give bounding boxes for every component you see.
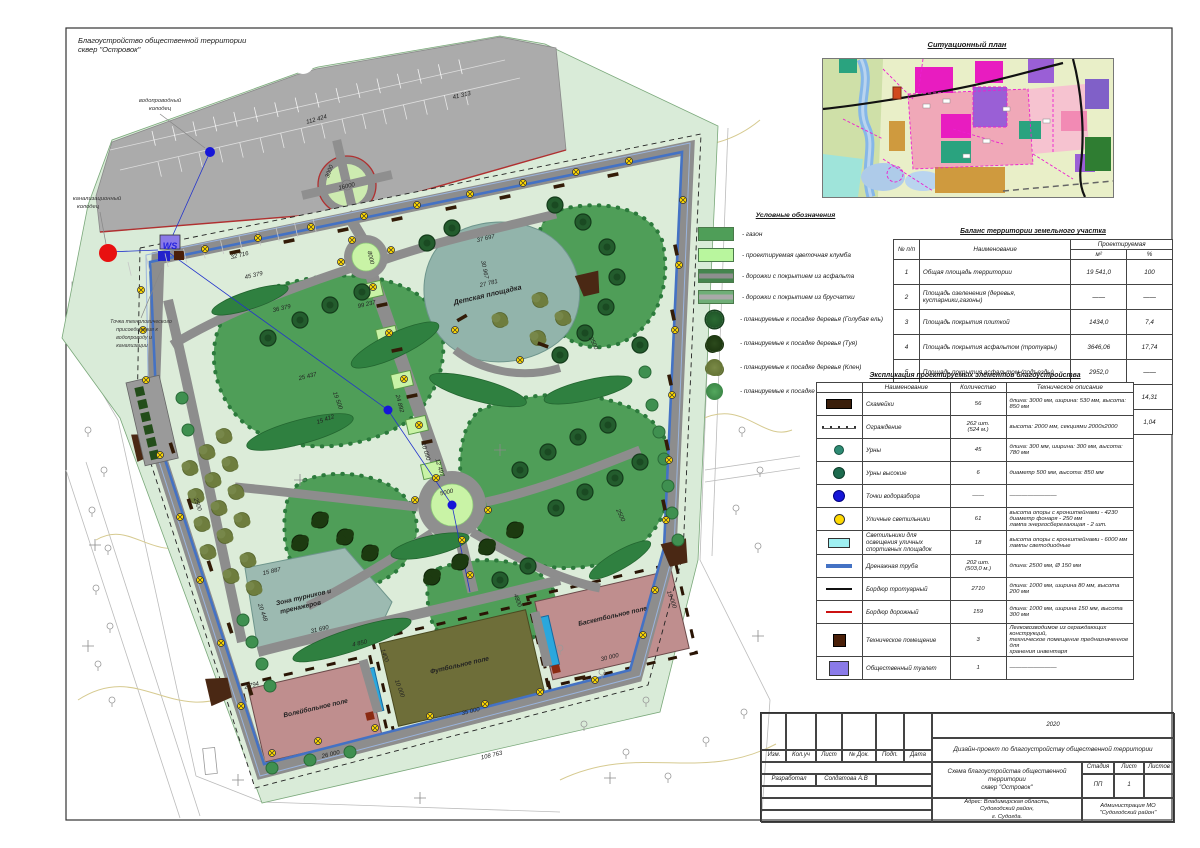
maple-tree-icon	[230, 462, 239, 471]
maple-tree-icon	[216, 430, 225, 439]
balance-row: 3 Площадь покрытия плиткой 1434,0 7,4	[894, 310, 1173, 335]
survey-tree-icon	[109, 697, 115, 703]
thuja-tree-icon	[361, 551, 371, 561]
legend-swatch-icon	[706, 335, 723, 352]
maple-tree-icon	[662, 480, 674, 492]
legend-swatch-icon	[698, 248, 734, 262]
row-m2: 19 541,0	[1071, 260, 1127, 285]
survey-tree-icon	[623, 749, 629, 755]
explication-table-block: Экспликация проектируемых элементов благ…	[816, 372, 1134, 680]
maple-tree-icon	[200, 546, 209, 555]
spruce-tree-icon	[297, 317, 304, 324]
element-desc: высота опоры с кронштейнами - 6000 мм ла…	[1006, 531, 1133, 555]
element-qty: 262 шт. (524 м.)	[950, 416, 1006, 439]
client: Администрация МО "Судогодский район"	[1081, 797, 1175, 823]
spruce-tree-icon	[327, 302, 334, 309]
element-desc: высота опоры с кронштейнами - 4230 диаме…	[1006, 508, 1133, 531]
plan-label: водопроводу и	[116, 335, 152, 341]
maple-tree-icon	[208, 550, 217, 559]
spruce-tree-icon	[605, 422, 612, 429]
spruce-tree-icon	[603, 304, 610, 311]
address: Адрес: Владимирская область, Судогодский…	[931, 797, 1083, 823]
survey-cross-icon	[89, 539, 101, 551]
spruce-tree-icon	[545, 449, 552, 456]
element-qty: 3	[950, 624, 1006, 657]
col-name: Наименование	[862, 383, 950, 393]
maple-tree-icon	[205, 474, 214, 483]
legend-item-label: - дорожки с покрытием из асфальта	[742, 273, 854, 280]
thuja-tree-icon	[431, 569, 441, 579]
survey-tree-icon	[107, 623, 113, 629]
thuja-tree-icon	[514, 522, 524, 532]
maple-tree-icon	[653, 426, 665, 438]
spruce-tree-icon	[265, 335, 272, 342]
element-desc: Легковозводимое из ограждающих конструкц…	[1006, 624, 1133, 657]
survey-cross-icon	[82, 640, 94, 652]
row-pct: 17,74	[1127, 335, 1173, 360]
maple-tree-icon	[182, 462, 191, 471]
col-pct: %	[1127, 250, 1173, 260]
title-block: Изм. Кол.уч Лист № Док. Подп. Дата Разра…	[760, 712, 1174, 822]
element-symbol-icon	[833, 634, 846, 647]
maple-tree-icon	[182, 424, 194, 436]
maple-tree-icon	[240, 554, 249, 563]
water-well	[205, 147, 215, 157]
element-qty: ——	[950, 485, 1006, 508]
element-name: Дренажная труба	[862, 555, 950, 578]
tech-room	[174, 251, 184, 260]
maple-tree-icon	[242, 518, 251, 527]
element-qty: 18	[950, 531, 1006, 555]
explication-table: Наименование Количество Техническое опис…	[816, 382, 1134, 680]
col-m2: м²	[1071, 250, 1127, 260]
explication-row: Бордюр тротуарный 2710 длина: 1000 мм, ш…	[817, 578, 1134, 601]
maple-tree-icon	[492, 314, 501, 323]
maple-tree-icon	[217, 530, 226, 539]
survey-tree-icon	[85, 427, 91, 433]
row-m2: 1434,0	[1071, 310, 1127, 335]
legend-item: - проектируемая цветочная клумба	[698, 248, 893, 262]
survey-tree-icon	[755, 543, 761, 549]
parking-notch	[292, 52, 314, 74]
legend-swatch-icon	[706, 383, 723, 400]
balance-table-title: Баланс территории земельного участка	[893, 228, 1173, 235]
thuja-tree-icon	[336, 535, 346, 545]
spruce-tree-icon	[553, 505, 560, 512]
thuja-tree-icon	[459, 554, 469, 564]
survey-tree-icon	[101, 467, 107, 473]
thuja-tree-icon	[299, 535, 309, 545]
col-name: Наименование	[919, 240, 1070, 260]
maple-tree-icon	[540, 298, 549, 307]
plan-label: колодец	[77, 204, 100, 210]
element-name: Урны высокие	[862, 462, 950, 485]
maple-tree-icon	[211, 502, 220, 511]
balance-row: 1 Общая площадь территории 19 541,0 100	[894, 260, 1173, 285]
element-name: Урны	[862, 439, 950, 462]
survey-cross-icon	[752, 630, 764, 642]
sheets-total	[1143, 773, 1175, 799]
thuja-tree-icon	[486, 539, 496, 549]
spruce-tree-icon	[604, 244, 611, 251]
thuja-tree-icon	[423, 575, 433, 585]
element-symbol-icon	[826, 588, 852, 590]
element-desc: высота: 2000 мм, секциями 2000х2000	[1006, 416, 1133, 439]
explication-row: Дренажная труба 202 шт. (503,0 м.) длина…	[817, 555, 1134, 578]
explication-table-title: Экспликация проектируемых элементов благ…	[816, 372, 1134, 379]
maple-tree-icon	[202, 522, 211, 531]
maple-tree-icon	[254, 586, 263, 595]
element-name: Бордюр тротуарный	[862, 578, 950, 601]
spruce-tree-icon	[449, 225, 456, 232]
drawing-sheet: { "sheet": { "title_line1": "Благоустрой…	[0, 0, 1200, 848]
plan-label: водопроводный	[139, 97, 182, 104]
water-point	[384, 406, 393, 415]
legend-item-label: - газон	[742, 231, 762, 238]
thuja-tree-icon	[369, 545, 379, 555]
maple-tree-icon	[639, 366, 651, 378]
col-desc: Техническое описание	[1006, 383, 1133, 393]
plan-label: WS	[163, 241, 178, 251]
survey-tree-icon	[703, 737, 709, 743]
row-name: Площадь покрытия плиткой	[919, 310, 1070, 335]
explication-row: Скамейки 56 длина: 3000 мм, ширина: 530 …	[817, 393, 1134, 416]
drawing-title: Схема благоустройства общественной терри…	[931, 761, 1083, 799]
spruce-tree-icon	[517, 467, 524, 474]
explication-row: Техническое помещение 3 Легковозводимое …	[817, 624, 1134, 657]
element-desc: длина: 3000 мм, ширина: 530 мм, высота: …	[1006, 393, 1133, 416]
spruce-tree-icon	[614, 274, 621, 281]
maple-tree-icon	[224, 434, 233, 443]
legend-swatch-icon	[698, 290, 734, 304]
survey-cross-icon	[232, 774, 244, 786]
thuja-tree-icon	[311, 518, 321, 528]
spruce-tree-icon	[424, 240, 431, 247]
element-name: Точки водоразбора	[862, 485, 950, 508]
plan-label: канализации	[116, 343, 148, 349]
legend-item-label: - планируемые к посадке деревья (Голубая…	[740, 316, 883, 323]
col-qty: Количество	[950, 383, 1006, 393]
maple-tree-icon	[231, 574, 240, 583]
survey-tree-icon	[105, 545, 111, 551]
element-symbol-icon	[834, 445, 844, 455]
thuja-tree-icon	[319, 512, 329, 522]
survey-tree-icon	[741, 709, 747, 715]
toilet-annex	[158, 251, 170, 261]
year: 2020	[931, 713, 1175, 739]
element-symbol-icon	[829, 661, 849, 676]
legend-item-label: - дорожки с покрытием из брусчатки	[742, 294, 855, 301]
explication-row: Светильники для освещения уличных спорти…	[817, 531, 1134, 555]
maple-tree-icon	[194, 518, 203, 527]
maple-tree-icon	[236, 490, 245, 499]
maple-tree-icon	[555, 312, 564, 321]
element-qty: 56	[950, 393, 1006, 416]
element-qty: 1	[950, 657, 1006, 680]
survey-cross-icon	[414, 792, 426, 804]
row-name: Площадь озеленения (деревья, кустарники,…	[919, 285, 1070, 310]
sewer-well	[99, 244, 117, 262]
stage-value: ПП	[1081, 773, 1115, 799]
maple-tree-icon	[222, 458, 231, 467]
spruce-tree-icon	[582, 330, 589, 337]
maple-tree-icon	[207, 450, 216, 459]
element-desc: ————————	[1006, 657, 1133, 680]
element-symbol-icon	[833, 490, 845, 502]
element-desc: длина: 1000 мм, ширина 80 мм, высота 200…	[1006, 578, 1133, 601]
element-desc: диаметр 500 мм, высота: 850 мм	[1006, 462, 1133, 485]
row-pct: 100	[1127, 260, 1173, 285]
maple-tree-icon	[176, 392, 188, 404]
explication-row: Общественный туалет 1 ————————	[817, 657, 1134, 680]
element-name: Скамейки	[862, 393, 950, 416]
sheet-title: Благоустройство общественной территории …	[78, 36, 246, 54]
thuja-tree-icon	[478, 545, 488, 555]
element-qty: 202 шт. (503,0 м.)	[950, 555, 1006, 578]
spruce-tree-icon	[359, 289, 366, 296]
maple-tree-icon	[234, 514, 243, 523]
legend-item-label: - планируемые к посадке деревья (Туя)	[740, 340, 857, 347]
row-m2: 3646,06	[1071, 335, 1127, 360]
legend-item: - дорожки с покрытием из асфальта	[698, 269, 893, 283]
row-num: 3	[894, 310, 920, 335]
row-num: 2	[894, 285, 920, 310]
maple-tree-icon	[530, 332, 539, 341]
row-num: 1	[894, 260, 920, 285]
maple-tree-icon	[563, 316, 572, 325]
plan-label: канализационный	[73, 195, 122, 202]
row-m2: ——	[1071, 285, 1127, 310]
legend-swatch-icon	[706, 359, 723, 376]
plan-label: Точка технологического	[110, 319, 172, 325]
survey-tree-icon	[757, 467, 763, 473]
col-group: Проектируемая	[1071, 240, 1173, 250]
maple-tree-icon	[500, 318, 509, 327]
legend-swatch-icon	[706, 311, 723, 328]
element-desc: длина: 1000 мм, ширина 150 мм, высота 30…	[1006, 601, 1133, 624]
legend-item: - дорожки с покрытием из брусчатки	[698, 290, 893, 304]
thuja-tree-icon	[344, 529, 354, 539]
element-desc: длина: 300 мм, ширина: 300 мм, высота: 7…	[1006, 439, 1133, 462]
maple-tree-icon	[223, 570, 232, 579]
balance-row: 2 Площадь озеленения (деревья, кустарник…	[894, 285, 1173, 310]
element-symbol-icon	[828, 538, 850, 548]
element-name: Ограждение	[862, 416, 950, 439]
element-name: Светильники для освещения уличных спорти…	[862, 531, 950, 555]
legend-item: - газон	[698, 227, 893, 241]
balance-row: 4 Площадь покрытия асфальтом (тротуары) …	[894, 335, 1173, 360]
legend-swatch-icon	[698, 227, 734, 241]
spruce-tree-icon	[552, 202, 559, 209]
maple-tree-icon	[304, 754, 316, 766]
element-name: Бордюр дорожный	[862, 601, 950, 624]
maple-tree-icon	[237, 614, 249, 626]
element-qty: 45	[950, 439, 1006, 462]
element-symbol-icon	[834, 514, 845, 525]
maple-tree-icon	[266, 762, 278, 774]
element-qty: 159	[950, 601, 1006, 624]
survey-tree-icon	[733, 505, 739, 511]
spruce-tree-icon	[497, 577, 504, 584]
col-num: № п/п	[894, 240, 920, 260]
element-symbol-icon	[822, 426, 856, 429]
situational-plan-map	[822, 58, 1114, 198]
maple-tree-icon	[225, 534, 234, 543]
sheet-title-line2: сквер "Островок"	[78, 45, 246, 54]
water-point	[448, 501, 457, 510]
maple-tree-icon	[532, 294, 541, 303]
project-name: Дизайн-проект по благоустройству обществ…	[931, 737, 1175, 763]
explication-row: Урны высокие 6 диаметр 500 мм, высота: 8…	[817, 462, 1134, 485]
situational-plan-title: Ситуационный план	[822, 40, 1112, 49]
maple-tree-icon	[219, 506, 228, 515]
explication-row: Точки водоразбора —— ————————	[817, 485, 1134, 508]
thuja-tree-icon	[451, 560, 461, 570]
row-pct: ——	[1127, 285, 1173, 310]
maple-tree-icon	[344, 746, 356, 758]
explication-row: Ограждение 262 шт. (524 м.) высота: 2000…	[817, 416, 1134, 439]
legend-item-label: - планируемые к посадке деревья (Клен)	[740, 364, 861, 371]
sheet-number: 1	[1113, 773, 1145, 799]
maple-tree-icon	[213, 478, 222, 487]
maple-tree-icon	[256, 658, 268, 670]
plan-label: присоединения к	[116, 327, 158, 333]
survey-tree-icon	[93, 585, 99, 591]
legend-item: - планируемые к посадке деревья (Туя)	[698, 335, 893, 352]
element-symbol-icon	[826, 611, 852, 614]
element-qty: 2710	[950, 578, 1006, 601]
row-num: 4	[894, 335, 920, 360]
spruce-tree-icon	[637, 342, 644, 349]
sheet-title-line1: Благоустройство общественной территории	[78, 36, 246, 45]
survey-tree-icon	[739, 427, 745, 433]
survey-tree-icon	[89, 507, 95, 513]
element-symbol-icon	[826, 399, 852, 409]
row-name: Площадь покрытия асфальтом (тротуары)	[919, 335, 1070, 360]
element-symbol-icon	[826, 564, 852, 568]
thuja-tree-icon	[291, 541, 301, 551]
legend-title: Условные обозначения	[698, 212, 893, 219]
maple-tree-icon	[228, 486, 237, 495]
element-desc: длина: 2500 мм, Ø 150 мм	[1006, 555, 1133, 578]
legend-item-label: - проектируемая цветочная клумба	[742, 252, 851, 259]
maple-tree-icon	[199, 446, 208, 455]
spruce-tree-icon	[575, 434, 582, 441]
explication-row: Урны 45 длина: 300 мм, ширина: 300 мм, в…	[817, 439, 1134, 462]
situational-map-graphic	[823, 59, 1113, 197]
row-pct: 7,4	[1127, 310, 1173, 335]
survey-cross-icon	[604, 772, 616, 784]
spruce-tree-icon	[582, 489, 589, 496]
col-symbol	[817, 383, 863, 393]
plan-label: колодец	[149, 106, 172, 112]
maple-tree-icon	[672, 534, 684, 546]
maple-tree-icon	[264, 680, 276, 692]
element-qty: 61	[950, 508, 1006, 531]
element-name: Техническое помещение	[862, 624, 950, 657]
spruce-tree-icon	[525, 563, 532, 570]
legend-item: - планируемые к посадке деревья (Голубая…	[698, 311, 893, 328]
spruce-tree-icon	[637, 459, 644, 466]
survey-tree-icon	[665, 773, 671, 779]
element-qty: 6	[950, 462, 1006, 485]
explication-row: Бордюр дорожный 159 длина: 1000 мм, шири…	[817, 601, 1134, 624]
survey-tree-icon	[95, 661, 101, 667]
spruce-tree-icon	[557, 352, 564, 359]
maple-tree-icon	[246, 636, 258, 648]
element-name: Общественный туалет	[862, 657, 950, 680]
element-name: Уличные светильники	[862, 508, 950, 531]
maple-tree-icon	[248, 558, 257, 567]
element-symbol-icon	[833, 467, 845, 479]
legend-swatch-icon	[698, 269, 734, 283]
maple-tree-icon	[246, 582, 255, 591]
spruce-tree-icon	[580, 219, 587, 226]
explication-row: Уличные светильники 61 высота опоры с кр…	[817, 508, 1134, 531]
element-desc: ————————	[1006, 485, 1133, 508]
thuja-tree-icon	[506, 528, 516, 538]
spruce-tree-icon	[612, 475, 619, 482]
row-name: Общая площадь территории	[919, 260, 1070, 285]
maple-tree-icon	[190, 466, 199, 475]
maple-tree-icon	[646, 399, 658, 411]
